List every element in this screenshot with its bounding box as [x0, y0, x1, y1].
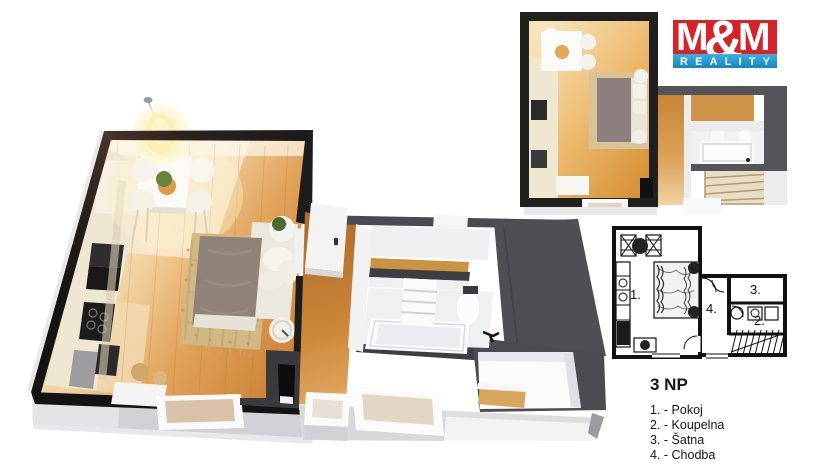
svg-text:4.: 4.	[706, 301, 717, 316]
svg-text:2.: 2.	[754, 313, 765, 328]
svg-text:1. - Pokoj: 1. - Pokoj	[650, 403, 703, 417]
svg-text:3 NP: 3 NP	[650, 375, 688, 394]
svg-text:2. - Koupelna: 2. - Koupelna	[650, 418, 724, 432]
svg-text:4. - Chodba: 4. - Chodba	[650, 448, 715, 462]
svg-text:3.: 3.	[750, 282, 761, 297]
svg-text:3. - Šatna: 3. - Šatna	[650, 432, 704, 447]
svg-text:1.: 1.	[630, 287, 641, 302]
